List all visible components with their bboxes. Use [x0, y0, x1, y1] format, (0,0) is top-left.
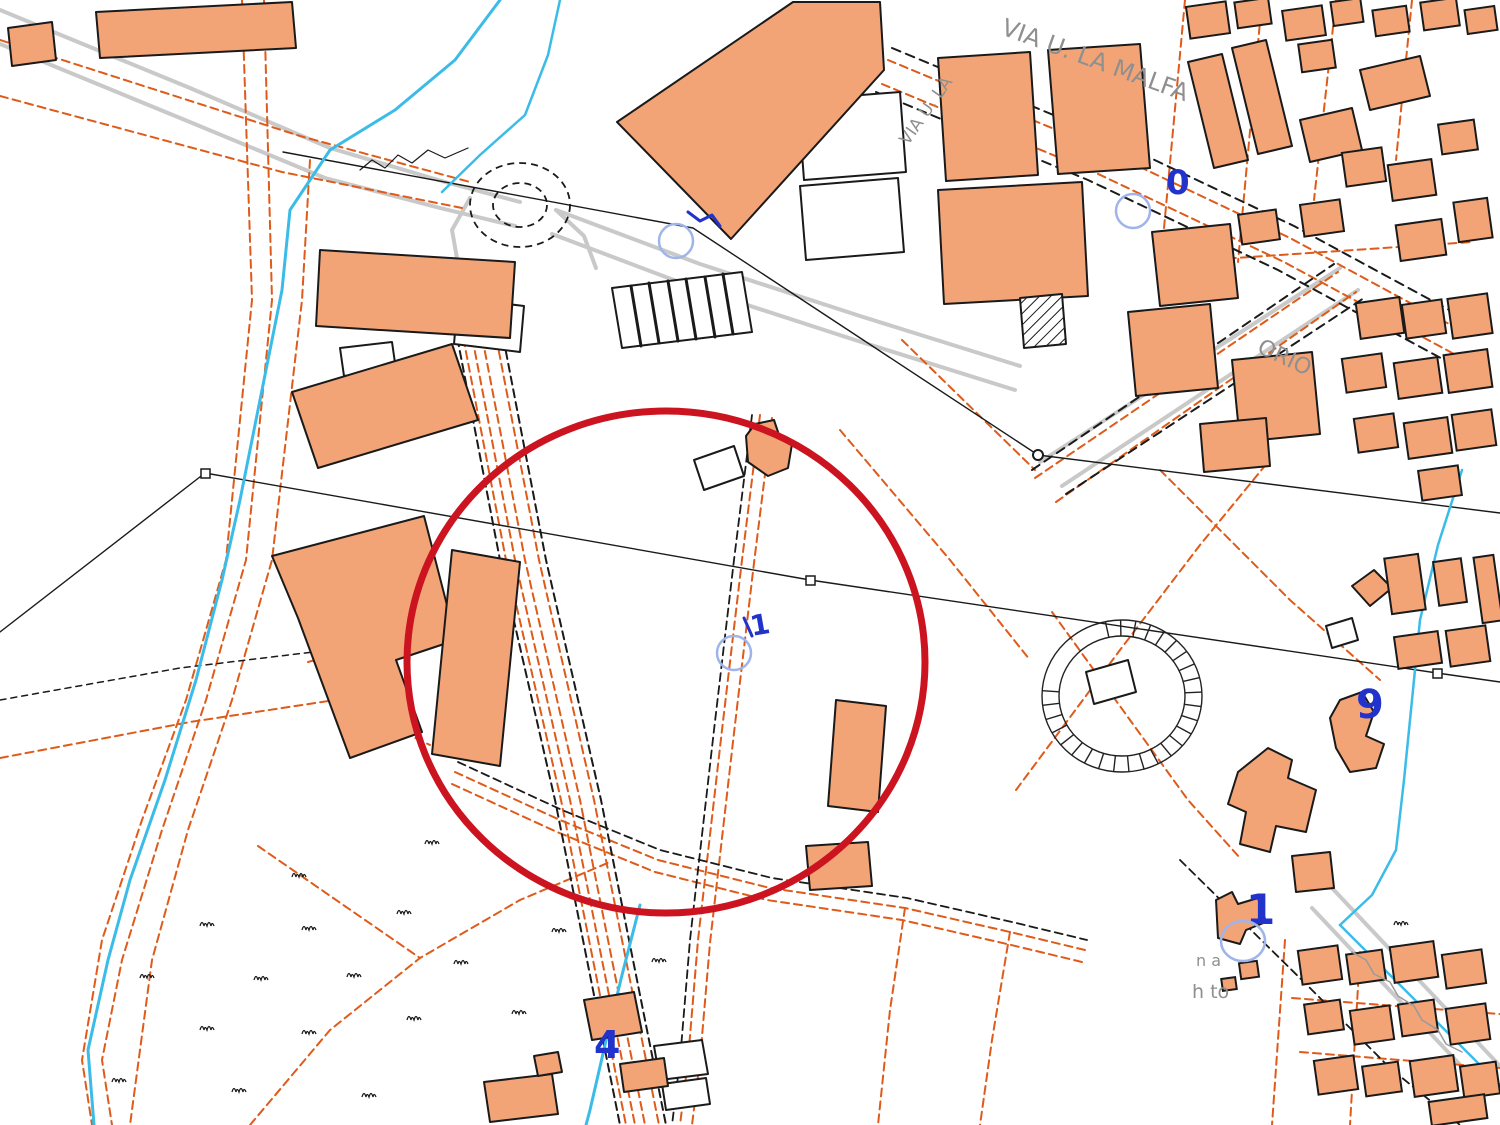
buildings-small-rects-item — [1388, 159, 1437, 201]
buildings-small-rects-item — [1446, 1003, 1491, 1044]
buildings-small-rects-item — [1238, 210, 1280, 245]
buildings-item — [432, 550, 520, 766]
buildings-small-rects-item — [1362, 1062, 1402, 1097]
buildings-item — [1128, 304, 1218, 396]
buildings-small-rects-item — [1398, 1000, 1438, 1037]
buildings-small-rects-item — [1460, 1062, 1500, 1099]
buildings-small-rects-item — [1186, 1, 1230, 38]
buildings-small-rects-item — [1418, 465, 1462, 500]
buildings-small-rects-item — [1282, 5, 1326, 40]
field-symbols-item — [140, 975, 154, 979]
place-label-fragment-2: h to — [1192, 981, 1229, 1003]
buildings-small-rects-item — [1420, 0, 1460, 30]
buildings-small-rects-item — [1346, 950, 1386, 985]
buildings-small-rects-item — [1372, 6, 1409, 36]
buildings-item — [1228, 748, 1316, 852]
cadastral-orange-lines-item — [1052, 612, 1240, 858]
roundabout-item — [493, 183, 547, 227]
field-symbols-item — [302, 927, 316, 931]
power-pylon-squares-item — [1433, 669, 1442, 678]
field-symbols-item — [1394, 922, 1408, 926]
buildings-small-rects-item — [1394, 357, 1443, 399]
buildings-small-rects-item — [1342, 147, 1386, 186]
buildings-small-rects-item — [1464, 6, 1497, 34]
field-symbols-item — [254, 977, 268, 981]
buildings-small-rects-item — [1429, 1094, 1488, 1125]
outline-buildings-item — [662, 1078, 710, 1110]
buildings-item — [316, 250, 515, 338]
power-pylon-squares-item — [806, 576, 815, 585]
buildings-small-rects-item — [1438, 120, 1478, 155]
cadastral-orange-lines-item — [840, 430, 1030, 660]
outline-buildings-item — [694, 446, 744, 490]
cadastral-orange-lines-item — [1016, 462, 1268, 790]
buildings-item — [938, 52, 1038, 181]
place-label-fragment-1: n a — [1196, 951, 1221, 970]
parking-lot — [612, 272, 752, 348]
buildings-small-rects-item — [1433, 558, 1467, 605]
cadastral-orange-lines-item — [452, 784, 1082, 962]
cadastral-orange-lines-item — [250, 862, 610, 1125]
outline-buildings-item — [1086, 660, 1136, 704]
buildings-small-rects-item — [1314, 1055, 1358, 1094]
field-symbols-item — [232, 1089, 246, 1093]
field-symbols-item — [425, 841, 439, 845]
buildings-small-rects-item — [1410, 1055, 1459, 1097]
buildings-item — [272, 516, 456, 758]
field-symbols-item — [347, 974, 361, 978]
survey-node — [1033, 450, 1043, 460]
buildings-small-rects-item — [1452, 409, 1497, 450]
parcel-black-lines-item — [0, 650, 330, 700]
buildings-small-rects-item — [1390, 941, 1439, 983]
buildings-small-rects-item — [1354, 413, 1398, 452]
field-symbols-item — [407, 1017, 421, 1021]
field-symbols-item — [200, 1027, 214, 1031]
cadastral-orange-lines-item — [692, 418, 772, 1125]
sheet-number-4: 4 — [594, 1023, 620, 1067]
cadastral-orange-lines-item — [680, 415, 760, 1125]
buildings-small-rects-item — [1453, 198, 1492, 242]
cadastral-orange-lines-item — [102, 0, 272, 1125]
hatched-building — [1020, 294, 1066, 348]
buildings-small-rects-item — [1447, 293, 1492, 338]
buildings-small-rects-item — [1234, 0, 1271, 28]
buildings-item — [484, 1074, 558, 1122]
sheet-number-0: 0 — [1166, 163, 1190, 203]
buildings-item — [1360, 56, 1430, 110]
cadastral-orange-lines-item — [878, 908, 905, 1125]
cadastral-orange-lines-item — [1272, 940, 1285, 1125]
buildings-small-rects-item — [1298, 945, 1342, 984]
buildings-item — [1292, 852, 1334, 892]
field-symbols-item — [552, 929, 566, 933]
field-symbols-item — [362, 1094, 376, 1098]
map-viewport[interactable]: VIA U. LAVIA U. LA MALFAORIOn ah to09411 — [0, 0, 1500, 1125]
buildings-item — [1200, 418, 1270, 472]
parking-lot-item — [612, 272, 752, 348]
outline-buildings-item — [1326, 618, 1358, 648]
field-symbols-item — [302, 1031, 316, 1035]
field-symbols-item — [454, 961, 468, 965]
sheet-number-9: 9 — [1356, 682, 1384, 728]
parcel-black-lines-item — [672, 415, 752, 1125]
buildings-small-rects-item — [1298, 40, 1336, 72]
buildings-item — [8, 22, 56, 66]
field-symbols-item — [397, 911, 411, 915]
buildings-small-rects-item — [1384, 554, 1425, 614]
hatched-building-item — [1020, 294, 1066, 348]
sheet-number-1: 1 — [1246, 885, 1275, 934]
buildings-item — [938, 182, 1088, 304]
cadastral-orange-lines-item — [980, 932, 1010, 1125]
buildings-small-rects-item — [1239, 961, 1259, 979]
buildings-item — [1152, 224, 1238, 306]
buildings-small-rects-item — [1304, 1000, 1344, 1035]
buildings-small-rects-item — [1444, 349, 1493, 393]
buildings-small-rects-item — [1402, 299, 1446, 338]
buildings-small-rects-item — [1300, 199, 1344, 236]
buildings-small-rects-item — [1330, 0, 1363, 26]
buildings-item — [96, 2, 296, 58]
lightblue-point-circles-item — [717, 636, 751, 670]
buildings-small-rects — [1186, 0, 1500, 1125]
buildings-small-rects-item — [1474, 555, 1500, 623]
buildings-small-rects-item — [1356, 297, 1405, 339]
outline-buildings-item — [800, 178, 904, 260]
field-symbols-item — [512, 1011, 526, 1015]
power-pylon-squares-item — [201, 469, 210, 478]
cadastral-orange-lines-item — [130, 160, 310, 1125]
buildings-item — [534, 1052, 562, 1076]
cadastral-orange-lines-item — [258, 846, 420, 958]
buildings-item — [828, 700, 886, 812]
field-symbols-item — [200, 923, 214, 927]
cadastral-orange-lines-item — [0, 40, 470, 182]
buildings-small-rects-item — [1342, 353, 1386, 392]
lightblue-point-circles-item — [1116, 194, 1150, 228]
map-layers: VIA U. LAVIA U. LA MALFAORIOn ah to09411 — [0, 0, 1500, 1125]
map-canvas: VIA U. LAVIA U. LA MALFAORIOn ah to09411 — [0, 0, 1500, 1125]
cadastral-orange-lines-item — [455, 772, 1085, 950]
stream-north — [442, 0, 560, 192]
cadastral-orange-lines-item — [902, 340, 1035, 470]
field-symbols-item — [292, 874, 306, 878]
buildings-small-rects-item — [1442, 949, 1486, 988]
field-symbols-item — [112, 1079, 126, 1083]
sheet-number-1b: 1 — [747, 607, 772, 643]
buildings-small-rects-item — [1404, 417, 1453, 459]
buildings-small-rects-item — [1446, 625, 1491, 666]
buildings-small-rects-item — [1350, 1005, 1394, 1044]
buildings-small-rects-item — [1396, 219, 1447, 261]
field-symbols-item — [652, 959, 666, 963]
buildings-item — [620, 1058, 668, 1092]
buildings-small-rects-item — [1394, 631, 1442, 669]
gray-roads-item — [0, 44, 515, 226]
